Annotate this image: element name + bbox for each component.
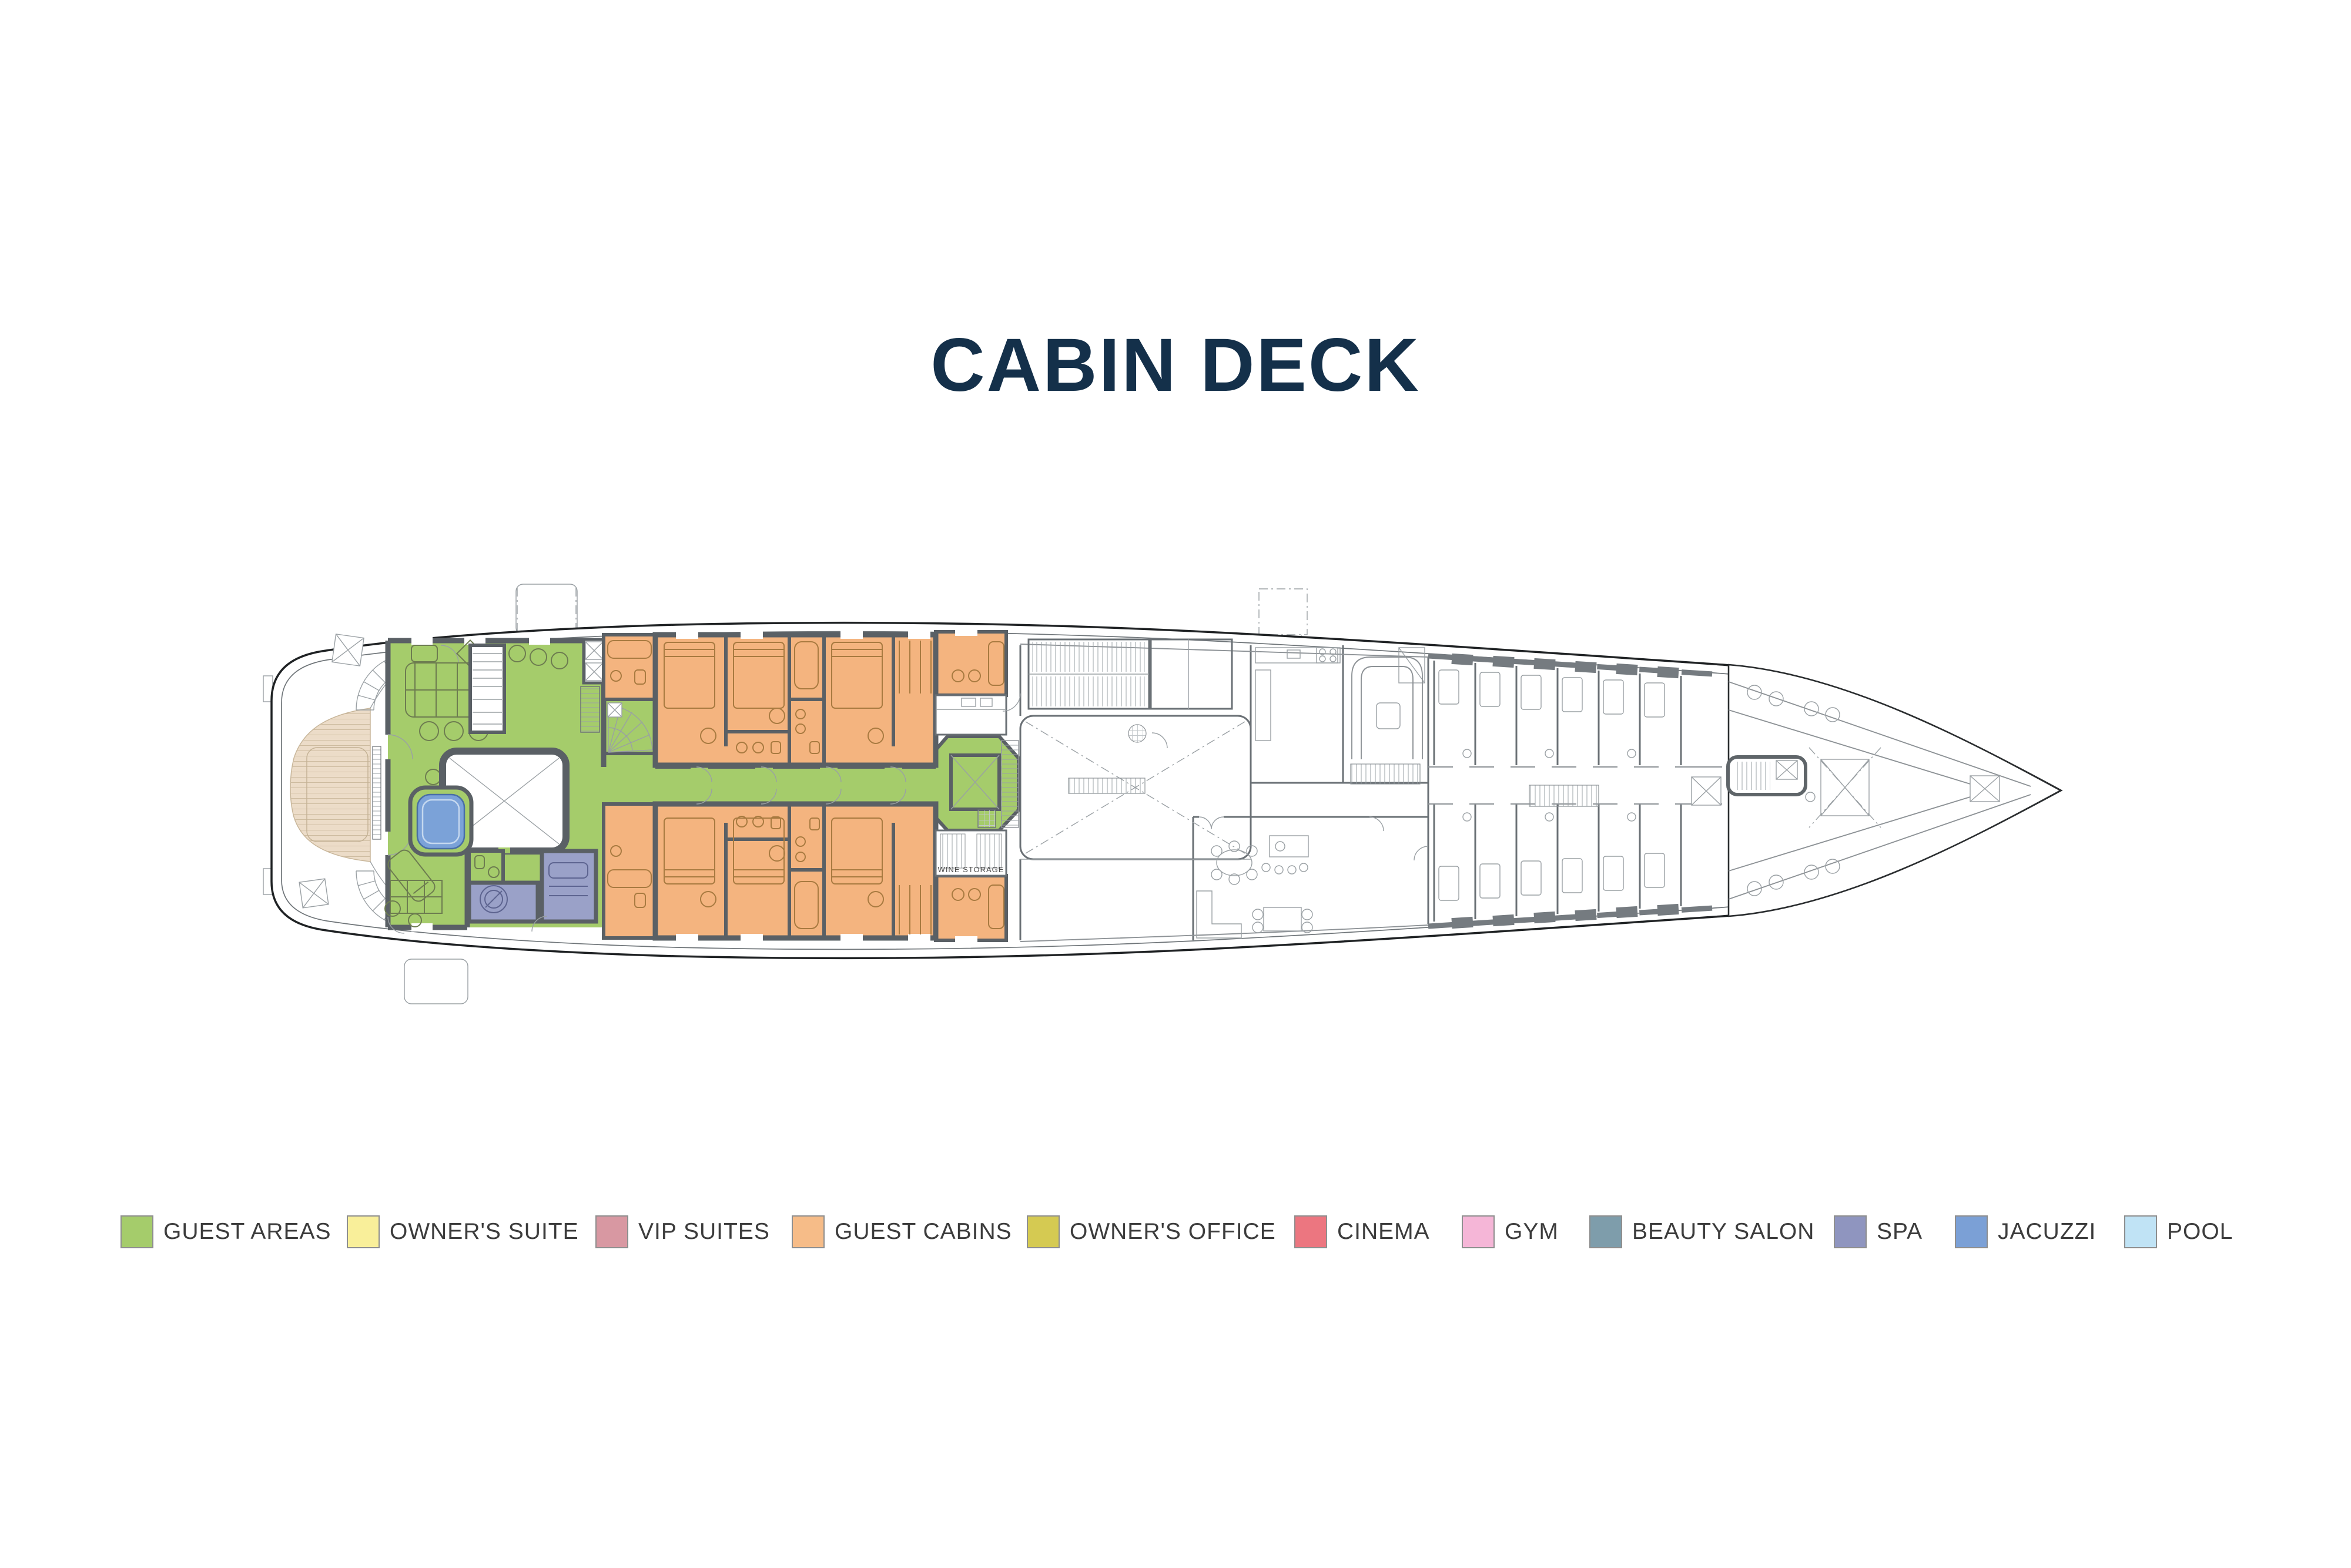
pantry-shelves-room [470,645,504,732]
legend-item-pool: POOL [2124,1215,2233,1248]
legend-item-guest-areas: GUEST AREAS [120,1215,331,1248]
owners-office-swatch [1027,1215,1060,1248]
legend-label: JACUZZI [1998,1219,2096,1245]
vip-suites-swatch [595,1215,628,1248]
legend-label: OWNER'S SUITE [390,1219,579,1245]
cinema-swatch [1294,1215,1327,1248]
jacuzzi-swatch [1955,1215,1988,1248]
wine-storage: WINE STORAGE [936,830,1006,876]
legend-label: BEAUTY SALON [1632,1219,1814,1245]
guest-areas-swatch [120,1215,153,1248]
legend-label: GUEST AREAS [163,1219,331,1245]
legend-label: GUEST CABINS [835,1219,1012,1245]
service-ladder [581,686,600,732]
guest-cabins-swatch [792,1215,825,1248]
legend-item-beauty-salon: BEAUTY SALON [1589,1215,1814,1248]
legend-label: CINEMA [1337,1219,1430,1245]
legend-label: SPA [1877,1219,1923,1245]
legend-item-owners-suite: OWNER'S SUITE [347,1215,579,1248]
legend-item-guest-cabins: GUEST CABINS [792,1215,1012,1248]
bow-section [1728,665,2061,916]
legend-label: OWNER'S OFFICE [1070,1219,1276,1245]
deck-plan: WINE STORAGE [0,0,2351,1568]
legend-label: GYM [1505,1219,1559,1245]
legend-item-vip-suites: VIP SUITES [595,1215,770,1248]
legend-label: VIP SUITES [638,1219,770,1245]
legend-item-gym: GYM [1462,1215,1559,1248]
legend-label: POOL [2167,1219,2233,1245]
guest-wc [469,851,503,883]
legend-item-owners-office: OWNER'S OFFICE [1027,1215,1276,1248]
owners-suite-swatch [347,1215,380,1248]
dumbwaiter-shaft [584,639,605,683]
svg-text:WINE STORAGE: WINE STORAGE [938,865,1004,874]
jacuzzi [410,788,471,855]
beauty-salon-swatch [1589,1215,1622,1248]
pool-swatch [2124,1215,2157,1248]
pantry [936,695,1006,735]
legend-item-spa: SPA [1834,1215,1923,1248]
legend-item-cinema: CINEMA [1294,1215,1430,1248]
legend-item-jacuzzi: JACUZZI [1955,1215,2096,1248]
spa-swatch [1834,1215,1867,1248]
gym-swatch [1462,1215,1495,1248]
